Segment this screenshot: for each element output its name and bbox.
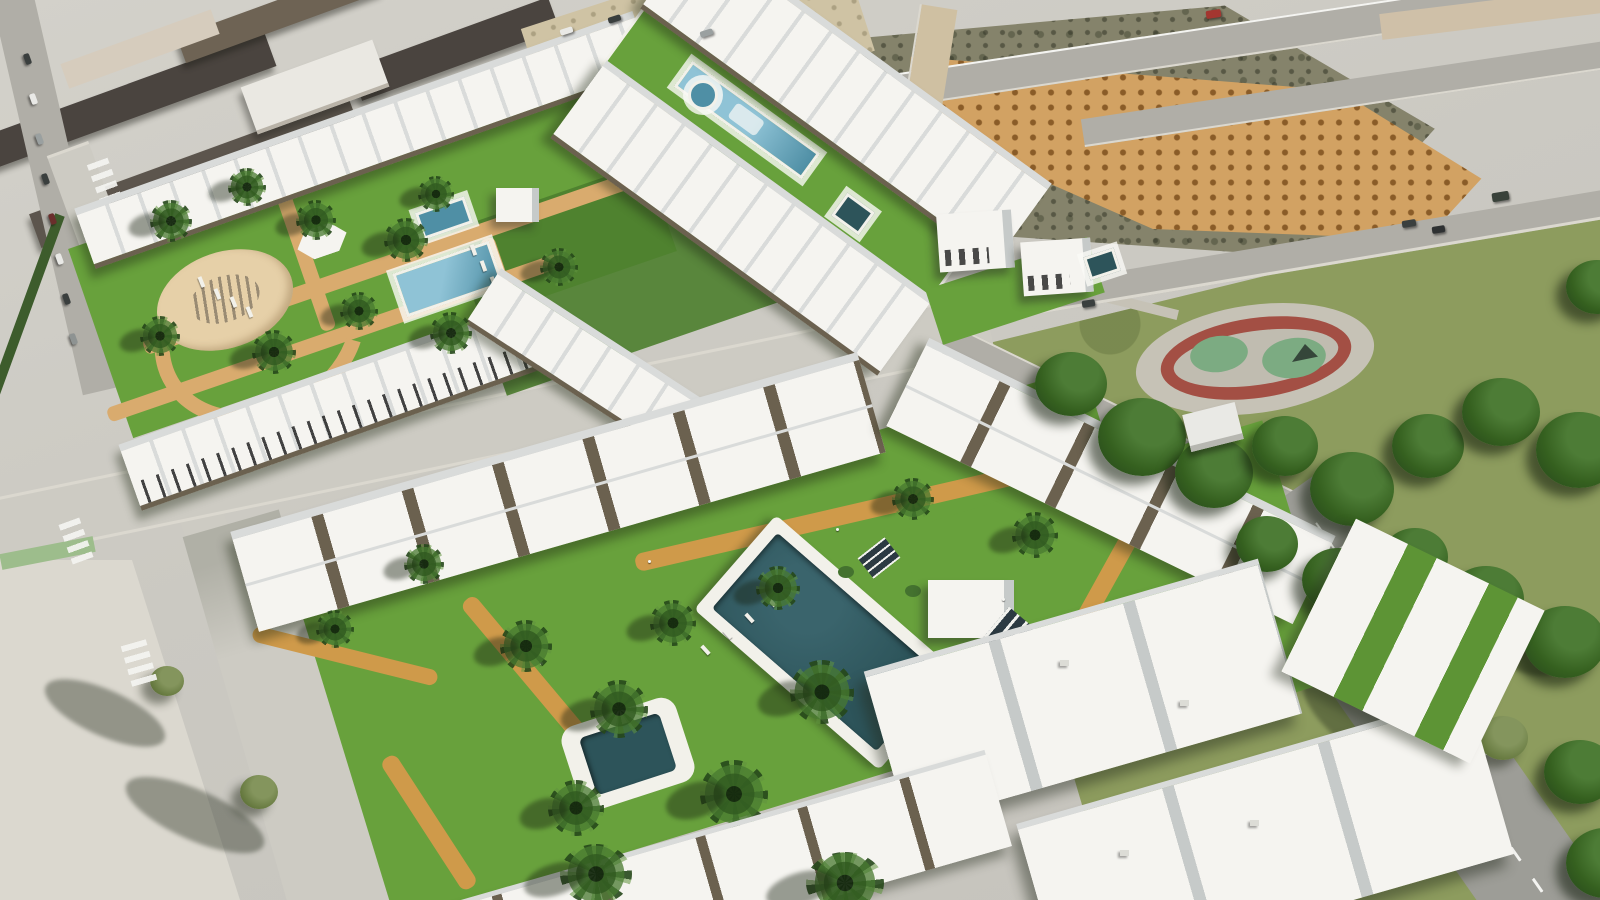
palm-tree [418,176,454,212]
palm-tree [316,610,354,648]
detached-villa [1020,238,1094,297]
palm-tree [500,620,552,672]
pine-tree [1310,452,1394,526]
garden-lamp [648,560,651,563]
moving-car [1491,191,1509,203]
palm-tree-foreground [560,844,632,900]
pine-tree [1035,352,1107,416]
pool-planter [838,566,854,578]
palm-tree [384,218,428,262]
pine-tree [1252,416,1318,476]
palm-tree [756,566,800,610]
pine-tree [1462,378,1540,446]
palm-tree [296,200,336,240]
round-splash-pool [688,80,718,110]
rooftop-vent [1060,660,1069,666]
aerial-render-scene [0,0,1600,900]
garden-lamp [836,528,839,531]
garden-lamp [1002,598,1005,601]
pine-tree [1098,398,1186,476]
palm-tree [340,292,378,330]
pine-tree [1175,438,1253,508]
pine-tree [1392,414,1464,478]
palm-tree [590,680,648,738]
palm-tree [150,200,192,242]
rooftop-vent [1250,820,1259,826]
palm-tree [140,316,180,356]
moving-car [1082,299,1096,308]
palm-tree [430,312,472,354]
pool-store-cube [496,188,539,222]
villa-windows [1028,273,1071,291]
pool-planter [905,585,921,597]
ground-logo-mark [183,266,266,333]
palm-tree [1012,512,1058,558]
palm-tree [790,660,854,724]
street-tree [240,775,278,809]
villa-windows [945,247,990,266]
palm-tree [252,330,296,374]
palm-tree [540,248,578,286]
detached-villa [936,209,1015,272]
street-tree [150,666,184,696]
palm-tree [548,780,604,836]
palm-tree [228,168,266,206]
rooftop-vent [1180,700,1189,706]
palm-tree [892,478,934,520]
rooftop-vent [1120,850,1129,856]
palm-tree [404,544,444,584]
palm-tree [650,600,696,646]
